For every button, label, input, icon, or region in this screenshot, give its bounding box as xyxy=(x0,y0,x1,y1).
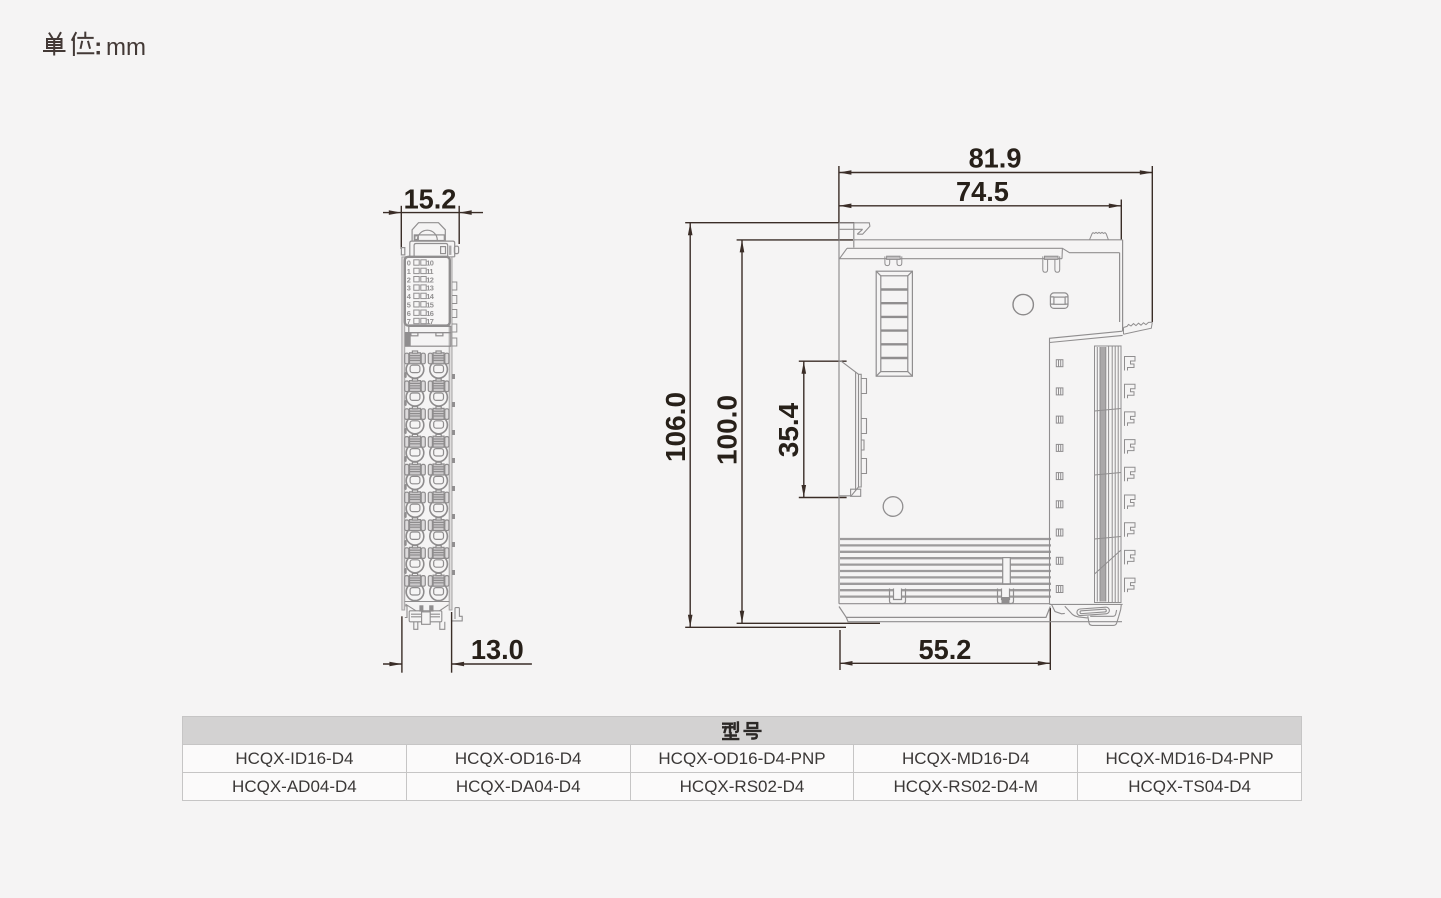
svg-text:35.4: 35.4 xyxy=(773,402,804,457)
svg-text:74.5: 74.5 xyxy=(956,175,1009,206)
svg-text:100.0: 100.0 xyxy=(712,395,743,465)
svg-text:13.0: 13.0 xyxy=(471,633,524,664)
svg-text:81.9: 81.9 xyxy=(969,142,1022,173)
svg-text:mm: mm xyxy=(106,34,146,61)
svg-text:17: 17 xyxy=(426,317,434,326)
svg-text:15.2: 15.2 xyxy=(404,183,457,214)
svg-text:55.2: 55.2 xyxy=(919,633,972,664)
svg-text:7: 7 xyxy=(407,317,411,326)
svg-text:106.0: 106.0 xyxy=(660,392,691,462)
